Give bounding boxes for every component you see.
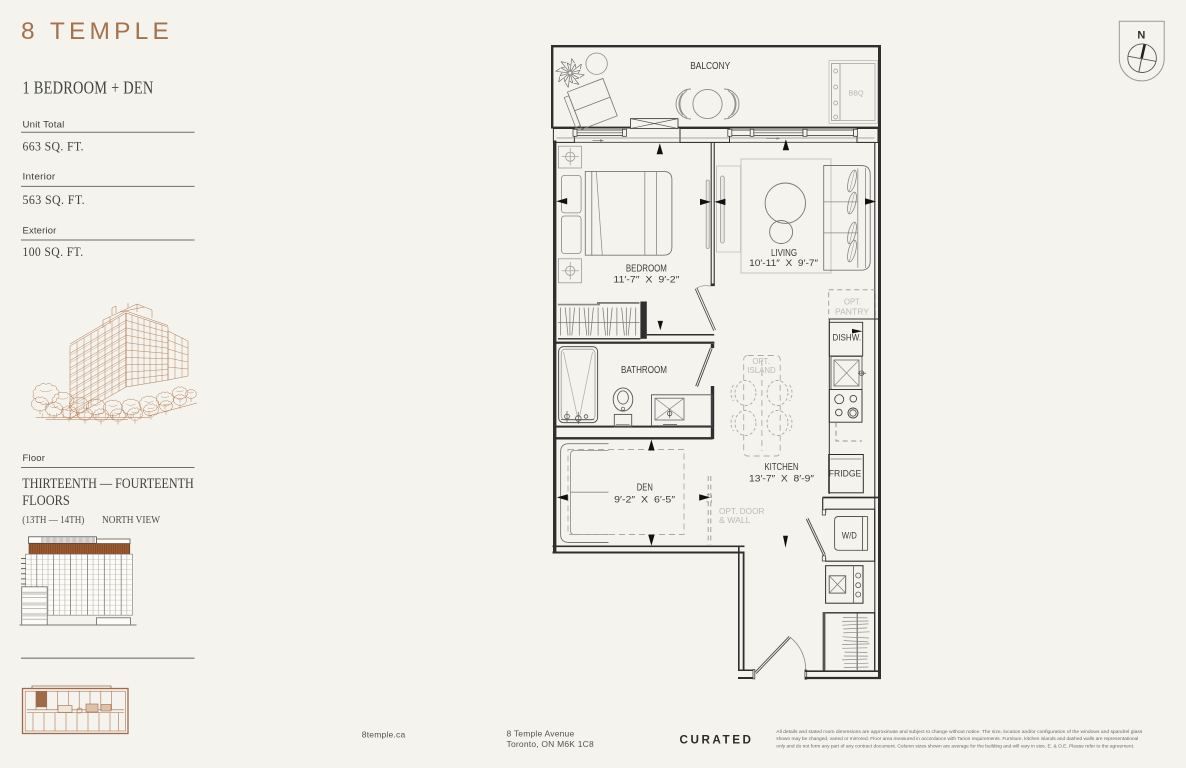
svg-text:663 SQ. FT.: 663 SQ. FT. — [23, 140, 85, 154]
svg-text:Toronto, ON M6K 1C8: Toronto, ON M6K 1C8 — [507, 739, 594, 749]
svg-text:All details and stated room di: All details and stated room dimensions a… — [776, 729, 1143, 735]
svg-text:BEDROOM: BEDROOM — [626, 264, 667, 275]
svg-text:11′-7″ X 9′-2″: 11′-7″ X 9′-2″ — [613, 275, 680, 286]
svg-text:KITCHEN: KITCHEN — [765, 462, 799, 473]
svg-text:OPT. DOOR: OPT. DOOR — [719, 507, 765, 516]
svg-text:DISHW.: DISHW. — [833, 333, 862, 343]
svg-text:& WALL: & WALL — [719, 516, 751, 525]
svg-text:DEN: DEN — [637, 483, 653, 494]
svg-text:THIRTEENTH — FOURTEENTH: THIRTEENTH — FOURTEENTH — [22, 476, 194, 492]
svg-text:N: N — [1137, 30, 1145, 42]
svg-text:OPT.: OPT. — [753, 357, 770, 366]
svg-text:Unit Total: Unit Total — [23, 119, 65, 130]
svg-text:PANTRY: PANTRY — [835, 308, 870, 317]
svg-text:Interior: Interior — [23, 171, 56, 182]
svg-text:BATHROOM: BATHROOM — [621, 365, 667, 376]
svg-text:9′-2″ X 6′-5″: 9′-2″ X 6′-5″ — [614, 494, 676, 505]
svg-text:Floor: Floor — [23, 453, 46, 464]
svg-text:OPT.: OPT. — [844, 298, 861, 307]
svg-text:10′-11″ X 9′-7″: 10′-11″ X 9′-7″ — [749, 258, 819, 269]
svg-text:BALCONY: BALCONY — [690, 61, 730, 72]
svg-text:8temple.ca: 8temple.ca — [362, 730, 406, 740]
svg-text:100 SQ. FT.: 100 SQ. FT. — [23, 245, 84, 259]
svg-text:8 Temple Avenue: 8 Temple Avenue — [507, 729, 575, 739]
svg-text:563 SQ. FT.: 563 SQ. FT. — [23, 193, 86, 207]
svg-text:BBQ: BBQ — [849, 90, 865, 97]
svg-text:W/D: W/D — [842, 531, 857, 541]
svg-text:13′-7″ X 8′-9″: 13′-7″ X 8′-9″ — [749, 474, 815, 485]
svg-text:1 BEDROOM + DEN: 1 BEDROOM + DEN — [23, 78, 154, 98]
svg-text:(13TH — 14TH): (13TH — 14TH) — [22, 515, 84, 526]
svg-text:FLOORS: FLOORS — [22, 493, 70, 509]
svg-text:CURATED: CURATED — [680, 733, 754, 747]
svg-text:Exterior: Exterior — [23, 226, 57, 237]
svg-text:only and do not form any part: only and do not form any part of any con… — [776, 744, 1134, 750]
svg-text:shown may be changed, varied o: shown may be changed, varied or mirrored… — [776, 736, 1138, 742]
svg-text:8 TEMPLE: 8 TEMPLE — [21, 18, 173, 45]
svg-text:NORTH VIEW: NORTH VIEW — [102, 515, 160, 526]
svg-text:ISLAND: ISLAND — [747, 366, 776, 375]
svg-text:FRIDGE: FRIDGE — [829, 469, 862, 479]
